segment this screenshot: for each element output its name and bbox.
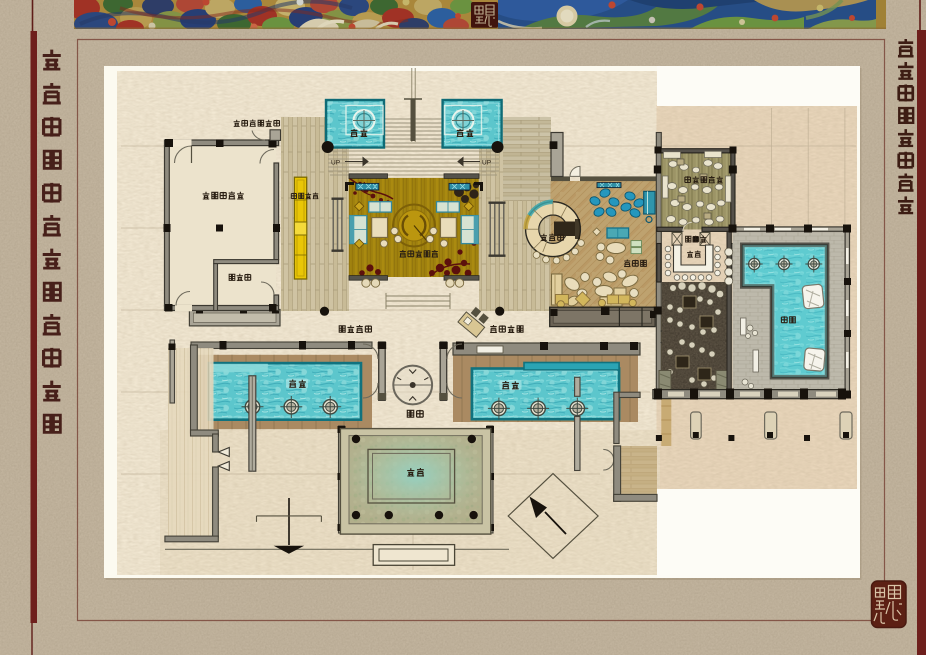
svg-text:UP: UP <box>331 160 340 167</box>
svg-text:UP: UP <box>482 160 491 167</box>
